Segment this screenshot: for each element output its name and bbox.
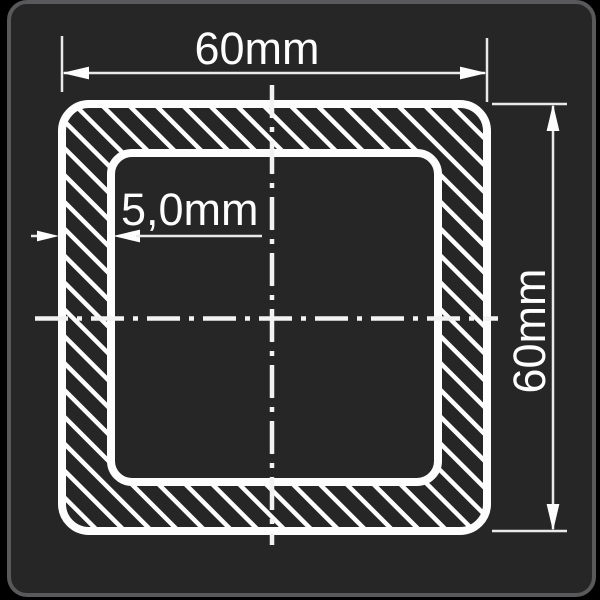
width-arrow-right-icon [460,67,487,80]
width-dimension: 60mm [62,23,487,102]
tube-cross-section-drawing: 60mm 60mm 5,0mm [0,0,600,600]
thickness-dimension-label: 5,0mm [121,184,259,235]
width-dimension-label: 60mm [194,23,319,74]
height-dimension: 60mm [492,104,567,531]
drawing-canvas: 60mm 60mm 5,0mm [0,0,600,600]
height-dimension-label: 60mm [504,268,555,393]
height-arrow-up-icon [547,104,560,131]
width-arrow-left-icon [62,67,89,80]
height-arrow-down-icon [547,504,560,531]
thickness-arrow-right-icon [37,231,59,242]
